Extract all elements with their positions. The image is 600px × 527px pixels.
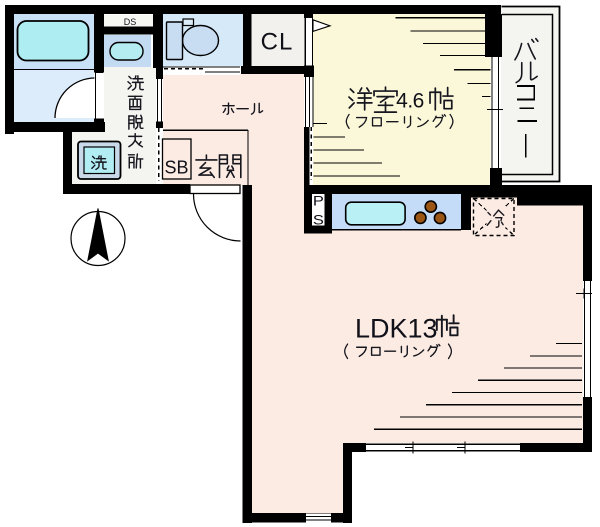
svg-text:LDK13: LDK13	[355, 313, 438, 343]
svg-text:DS: DS	[124, 17, 137, 27]
svg-text:S: S	[313, 212, 324, 228]
svg-text:4.6: 4.6	[396, 90, 424, 113]
svg-text:SB: SB	[164, 158, 188, 178]
svg-text:CL: CL	[261, 29, 294, 56]
svg-text:P: P	[313, 193, 324, 209]
